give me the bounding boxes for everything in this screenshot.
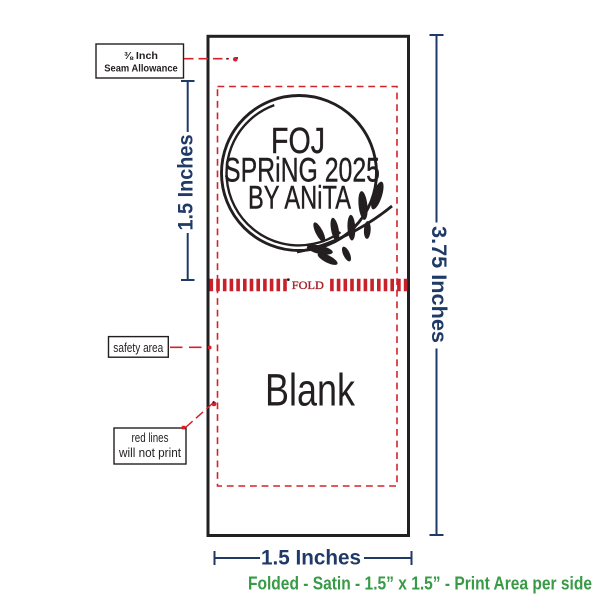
svg-text:BY ANiTA: BY ANiTA (248, 180, 351, 216)
svg-text:Seam Allowance: Seam Allowance (104, 64, 178, 75)
svg-text:1.5 Inches: 1.5 Inches (261, 547, 361, 570)
svg-text:3.75 Inches: 3.75 Inches (427, 226, 451, 343)
svg-text:red lines: red lines (132, 430, 169, 445)
svg-text:FOLD: FOLD (292, 280, 324, 292)
svg-text:will not print: will not print (118, 445, 181, 460)
svg-text:1.5 Inches: 1.5 Inches (174, 134, 198, 230)
svg-text:safety area: safety area (113, 340, 164, 355)
svg-text:Blank: Blank (265, 365, 355, 416)
svg-text:⅜ Inch: ⅜ Inch (124, 51, 158, 62)
svg-text:Folded - Satin - 1.5” x 1.5” -: Folded - Satin - 1.5” x 1.5” - Print Are… (248, 574, 592, 594)
